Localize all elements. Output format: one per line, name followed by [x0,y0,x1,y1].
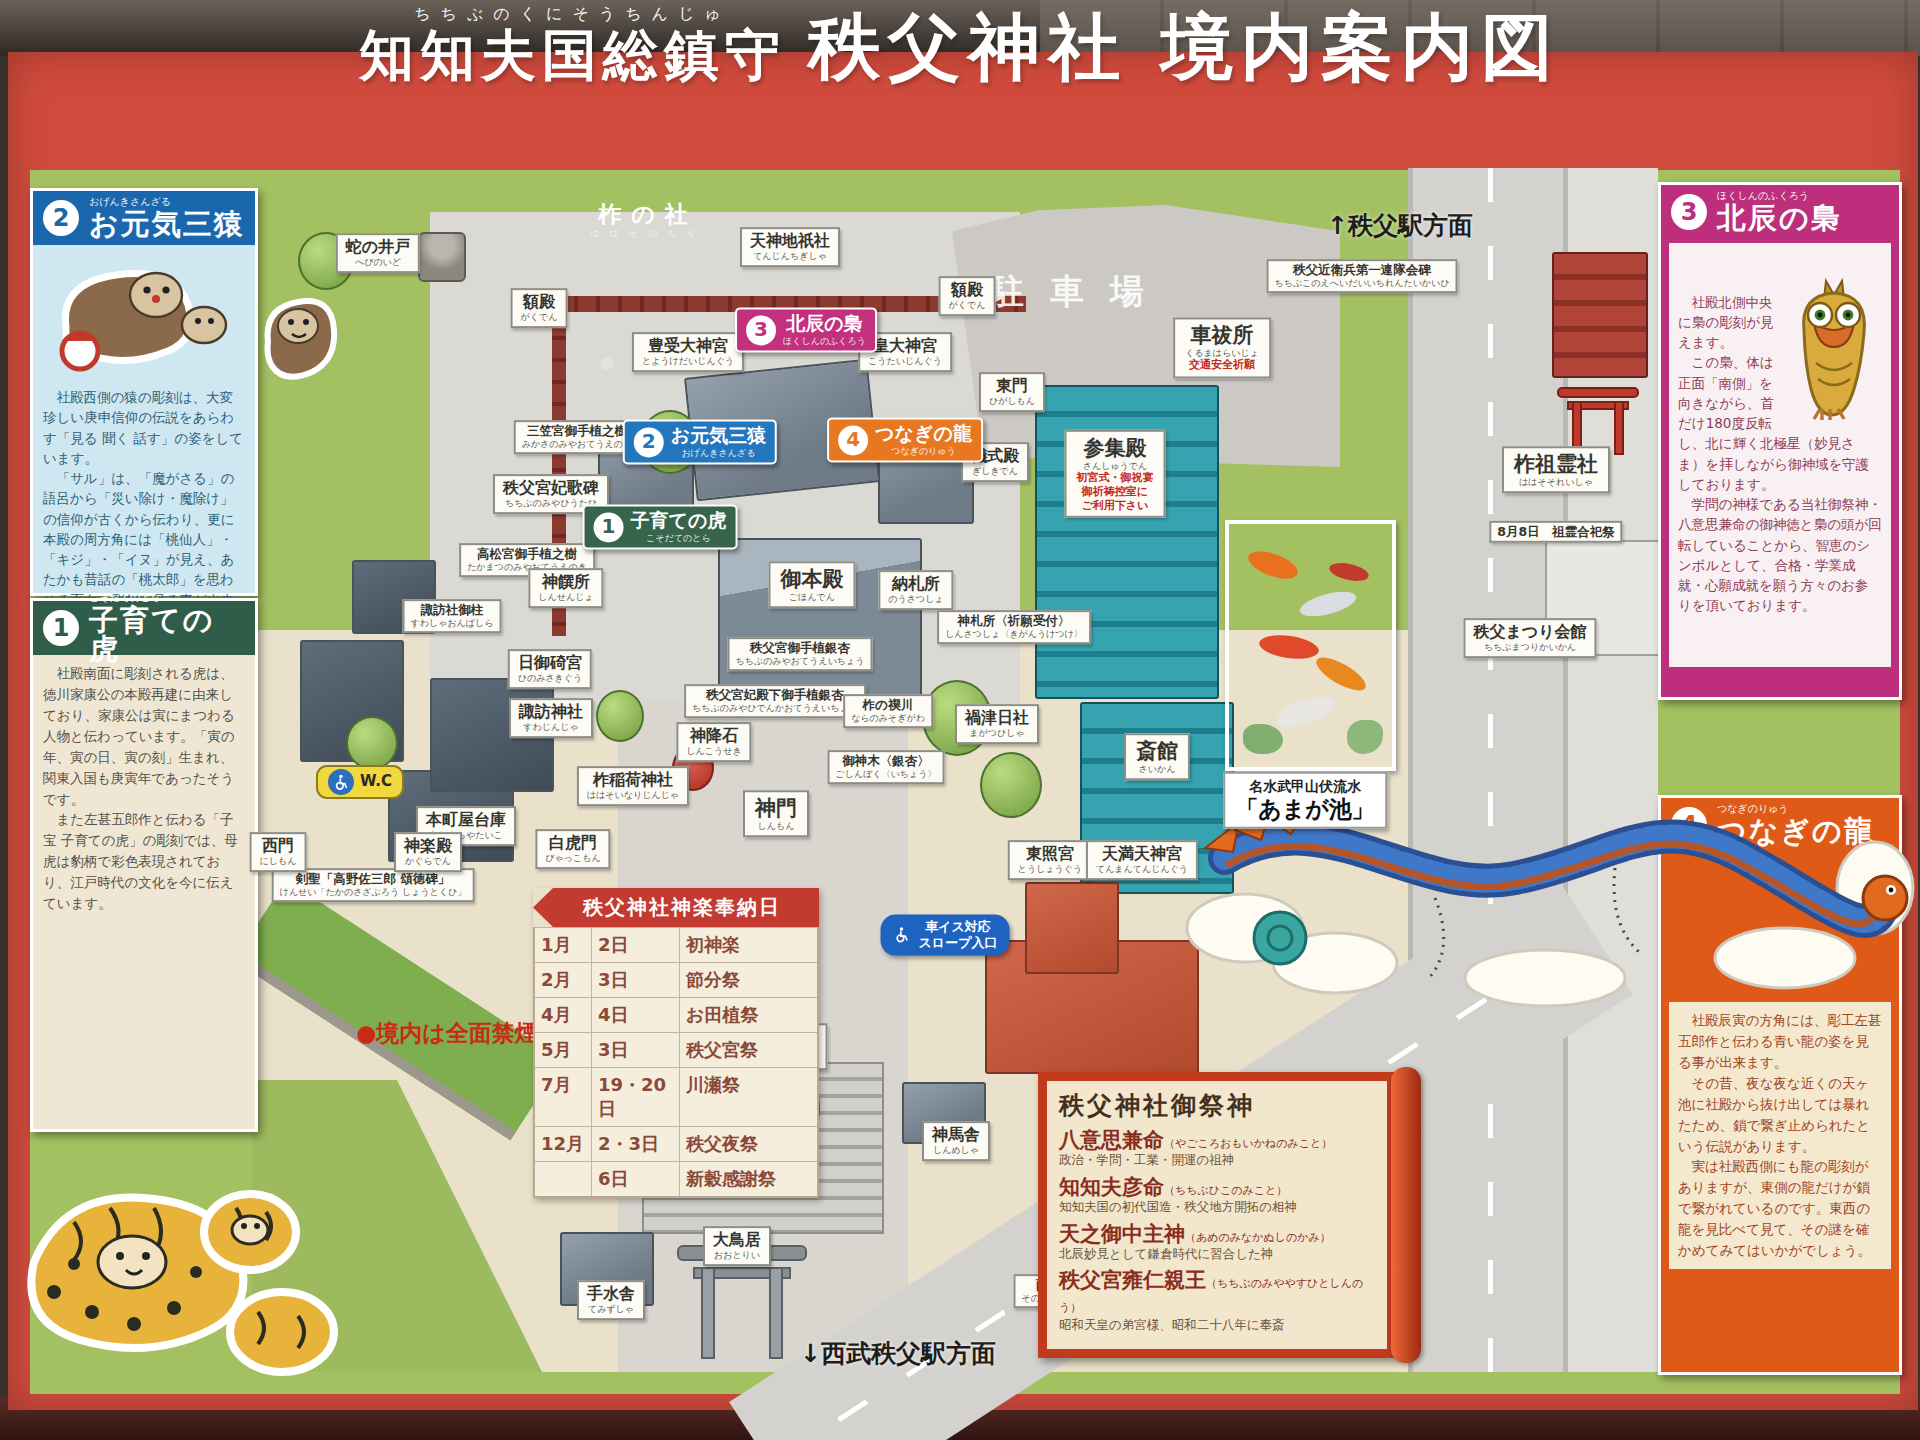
deity-name: 天之御中主神（あめのみなかぬしのかみ） [1059,1222,1375,1246]
title-prefix: 知知夫国総鎮守 [359,28,786,83]
building [878,420,974,524]
deity-entry: 秩父宮雍仁親王（ちちぶのみややすひとしんのう）昭和天皇の弟宮様、昭和二十八年に奉… [1059,1268,1375,1332]
deities-scroll-panel: 秩父神社御祭神 八意思兼命（やごころおもいかねのみこと）政治・学問・工業・開運の… [1038,1072,1396,1358]
kagura-table-row: 4月4日お田植祭 [533,997,819,1032]
sign-title: ちちぶのくにそうちんじゅ 知知夫国総鎮守 秩父神社 境内案内図 [0,6,1920,83]
kagura-table-cell: 初神楽 [679,927,817,962]
grand-torii-icon [672,1232,812,1362]
kagura-table-cell: 川瀬祭 [679,1067,817,1126]
toshogu-building [1025,882,1119,974]
kagura-table-cell: 秩父宮祭 [679,1032,817,1067]
kagura-table-title: 秩父神社神楽奉納日 [533,888,819,927]
kagura-table-cell: 6日 [591,1161,679,1196]
kagura-table-row: 6日新穀感謝祭 [533,1161,819,1198]
deity-entry: 八意思兼命（やごころおもいかねのみこと）政治・学問・工業・開運の祖神 [1059,1128,1375,1168]
deity-name-ruby: （ちちぶひこのみこと） [1164,1184,1287,1197]
kagura-table-row: 2月3日節分祭 [533,962,819,997]
panel-number: 1 [43,610,79,646]
kagura-table-cell: 12月 [535,1126,591,1161]
kagura-table-cell: 1月 [535,927,591,962]
panel-title: 子育ての虎 [89,606,245,664]
kagura-table-cell [535,1161,591,1196]
kagura-table-body: 1月2日初神楽2月3日節分祭4月4日お田植祭5月3日秩父宮祭7月19・20日川瀬… [533,927,819,1198]
panel-kosodate-no-tora: 1 こそだてのとら 子育ての虎 社殿南面に彫刻される虎は、徳川家康公の本殿再建に… [30,598,258,1132]
kagura-table-row: 1月2日初神楽 [533,927,819,962]
tree [640,410,700,474]
red-torii-icon [1556,382,1640,456]
kagura-table-cell: 2月 [535,962,591,997]
tree [346,716,398,770]
corridor-wall-left [552,296,566,636]
panel-kosodate-no-tora-text: 社殿南面に彫刻される虎は、徳川家康公の本殿再建に由来しており、家康公は寅にまつわ… [33,655,255,922]
panel-number: 3 [1671,194,1707,230]
street-right [1408,168,1568,1372]
building [684,359,880,502]
deity-description: 政治・学問・工業・開運の祖神 [1059,1152,1375,1168]
kagura-table-row: 7月19・20日川瀬祭 [533,1067,819,1126]
panel-number: 2 [43,200,79,236]
panel-title: 北辰の梟 [1717,204,1842,233]
deity-name: 秩父宮雍仁親王（ちちぶのみややすひとしんのう） [1059,1268,1375,1316]
kagura-table-cell: 2日 [591,927,679,962]
panel-hokushin-no-fukurou: 3 ほくしんのふくろう 北辰の梟 社殿北側中央に梟の彫刻が見えます。 この梟、体… [1658,182,1902,700]
shinmesha-building [902,1082,986,1144]
panel-hokushin-no-fukurou-header: 3 ほくしんのふくろう 北辰の梟 [1661,185,1899,239]
corridor-wall-top [556,296,1026,312]
dragon-illustration [1185,778,1915,1013]
deity-name: 知知夫彦命（ちちぶひこのみこと） [1059,1175,1375,1199]
building [352,560,436,634]
kagura-table-cell: 2・3日 [591,1126,679,1161]
kagura-table-cell: 3日 [591,1032,679,1067]
deity-name: 八意思兼命（やごころおもいかねのみこと） [1059,1128,1375,1152]
scene [0,0,1920,1440]
kagura-table-cell: 節分祭 [679,962,817,997]
sorei-sha-steps [1552,252,1648,378]
deity-name-ruby: （やごころおもいかねのみこと） [1164,1137,1332,1150]
temizuya-building [560,1232,654,1306]
title-furigana: ちちぶのくにそうちんじゅ [414,6,731,22]
deity-name-ruby: （ちちぶのみややすひとしんのう） [1059,1277,1363,1314]
kagura-table-cell: 秩父夜祭 [679,1126,817,1161]
panel-title-ruby: こそだてのとら [89,593,245,603]
deity-name-ruby: （あめのみなかぬしのかみ） [1185,1231,1331,1244]
amagaike-koi-pond-photo [1225,520,1396,771]
kagura-table-cell: 3日 [591,962,679,997]
panel-title-ruby: おげんきさんざる [89,197,245,207]
deity-description: 知知夫国の初代国造・秩父地方開拓の相神 [1059,1199,1375,1215]
panel-tsunagi-no-ryu-text: 社殿辰寅の方角には、彫工左甚五郎作と伝わる青い龍の姿を見る事が出来ます。 その昔… [1669,1002,1891,1269]
kagura-table-cell: 19・20日 [591,1067,679,1126]
red-shrine-object [672,745,714,791]
kagura-table-cell: 5月 [535,1032,591,1067]
panel-title: お元気三猿 [89,210,245,239]
title-main: 秩父神社 境内案内図 [808,11,1561,83]
kagura-table-cell: お田植祭 [679,997,817,1032]
owl-illustration [1786,271,1882,421]
deities-title: 秩父神社御祭神 [1059,1089,1375,1122]
tigers-illustration [14,1112,350,1412]
sanshuden-building [1035,385,1219,699]
monkeys-illustration [36,247,252,379]
deity-entry: 天之御中主神（あめのみなかぬしのかみ）北辰妙見として鎌倉時代に習合した神 [1059,1222,1375,1262]
yatai-storage-building [430,678,554,792]
kagura-table-cell: 7月 [535,1067,591,1126]
panel-kosodate-no-tora-header: 1 こそだてのとら 子育ての虎 [33,601,255,655]
main-hall-building [718,538,922,707]
kagura-table-cell: 4月 [535,997,591,1032]
snake-well [418,232,466,282]
panel-ogenki-sanzaru: 2 おげんきさんざる お元気三猿 社殿西側の猿の彫刻は、大変珍しい庚申信仰の伝説… [30,188,258,596]
monkey-sticker-illustration [252,282,344,386]
tree [980,752,1042,818]
kagura-table-cell: 新穀感謝祭 [679,1161,817,1196]
deity-description: 北辰妙見として鎌倉時代に習合した神 [1059,1246,1375,1262]
tree [922,680,992,756]
tree [596,690,644,742]
deity-description: 昭和天皇の弟宮様、昭和二十八年に奉斎 [1059,1317,1375,1333]
deities-list: 八意思兼命（やごころおもいかねのみこと）政治・学問・工業・開運の祖神知知夫彦命（… [1059,1128,1375,1332]
kagura-table-row: 5月3日秩父宮祭 [533,1032,819,1067]
kagura-table-row: 12月2・3日秩父夜祭 [533,1126,819,1161]
kagura-schedule-table: 秩父神社神楽奉納日 1月2日初神楽2月3日節分祭4月4日お田植祭5月3日秩父宮祭… [533,888,819,1198]
panel-title-ruby: ほくしんのふくろう [1717,191,1842,201]
panel-ogenki-sanzaru-header: 2 おげんきさんざる お元気三猿 [33,191,255,245]
deity-entry: 知知夫彦命（ちちぶひこのみこと）知知夫国の初代国造・秩父地方開拓の相神 [1059,1175,1375,1215]
kagura-table-cell: 4日 [591,997,679,1032]
